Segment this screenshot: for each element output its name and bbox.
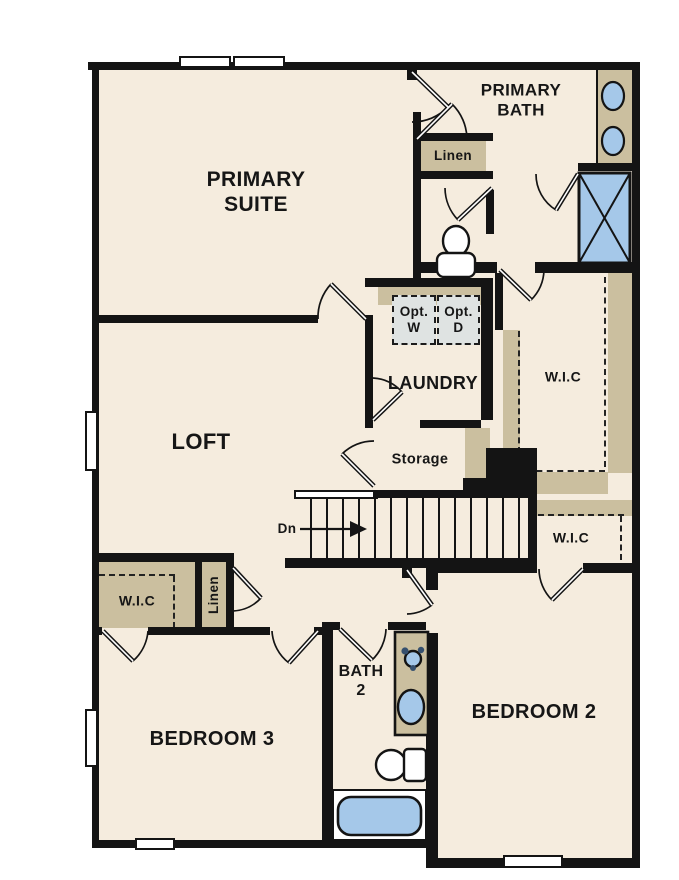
label-stairs-dn: Dn bbox=[278, 521, 297, 537]
wall-bedroom3-east bbox=[322, 630, 333, 842]
wall-wic-west bbox=[495, 273, 503, 330]
window-top-1 bbox=[179, 56, 231, 68]
room-label-primary-bath: PRIMARY BATH bbox=[481, 81, 562, 122]
wall-exterior-top bbox=[88, 62, 640, 70]
wall-linen-left-b bbox=[226, 558, 234, 628]
room-label-loft: LOFT bbox=[171, 429, 230, 455]
wall-block-b bbox=[486, 448, 537, 497]
wall-exterior-right bbox=[632, 70, 640, 868]
washer-label: Opt. W bbox=[400, 304, 429, 336]
wall-vanity-south bbox=[578, 163, 632, 171]
wall-bath-south-a bbox=[421, 262, 497, 273]
room-label-laundry: LAUNDRY bbox=[388, 373, 478, 395]
floor-plan: Opt. W Opt. D bbox=[0, 0, 679, 880]
wall-laundry-north bbox=[365, 278, 493, 287]
stair-railing bbox=[294, 490, 378, 499]
shelf-line bbox=[99, 574, 175, 576]
label-linen-left: Linen bbox=[206, 576, 222, 614]
wall-bedroom2-north-a bbox=[438, 563, 537, 573]
room-label-primary-suite: PRIMARY SUITE bbox=[207, 167, 306, 217]
wall-linen-north bbox=[413, 133, 493, 141]
wall-loft-north bbox=[99, 315, 318, 323]
dryer-box: Opt. D bbox=[437, 295, 480, 345]
room-label-bedroom3: BEDROOM 3 bbox=[150, 727, 275, 751]
wall-linen-south bbox=[413, 171, 493, 179]
wall-bath2-north-a bbox=[322, 622, 340, 630]
wall-bedroom3-north bbox=[148, 627, 270, 635]
wall-linen-left-a bbox=[195, 558, 202, 628]
shelf-line bbox=[518, 331, 520, 453]
room-label-wic-right: W.I.C bbox=[545, 369, 581, 386]
staircase bbox=[296, 497, 528, 558]
wall-laundry-east bbox=[481, 287, 493, 420]
wall-bedroom2-north-b bbox=[583, 563, 632, 573]
wall-toilet-nook bbox=[486, 190, 494, 234]
wall-laundry-south bbox=[420, 420, 481, 428]
wic-right-shelf-east bbox=[608, 273, 632, 473]
wall-hinge-stub bbox=[407, 70, 417, 80]
room-label-bath2: BATH 2 bbox=[339, 662, 384, 700]
wall-hinge-stub bbox=[402, 568, 412, 578]
shelf-line bbox=[604, 277, 606, 467]
wall-bedroom2-west-b bbox=[426, 633, 438, 842]
label-linen-top: Linen bbox=[434, 148, 472, 164]
wall-exterior-step bbox=[426, 840, 438, 866]
wall-wic-left-north bbox=[92, 553, 234, 562]
wall-bedroom3-north-stub bbox=[92, 627, 102, 635]
washer-box: Opt. W bbox=[392, 295, 436, 345]
window-bedroom3-bottom bbox=[135, 838, 175, 850]
shelf-line bbox=[620, 516, 622, 560]
room-label-bedroom2: BEDROOM 2 bbox=[472, 700, 597, 724]
room-label-storage: Storage bbox=[392, 451, 449, 468]
window-bedroom2-bottom bbox=[503, 855, 563, 868]
window-top-2 bbox=[233, 56, 285, 68]
window-loft-left bbox=[85, 411, 98, 471]
dryer-label: Opt. D bbox=[444, 304, 473, 336]
window-bedroom3-left bbox=[85, 709, 98, 767]
wall-laundry-west bbox=[365, 315, 373, 428]
wall-bedroom3-north-stub bbox=[314, 627, 322, 635]
room-label-wic-left: W.I.C bbox=[119, 593, 155, 610]
wall-bedroom2-west-a bbox=[426, 563, 438, 590]
wall-bath-south-b bbox=[535, 262, 632, 273]
shelf-line bbox=[173, 576, 175, 628]
room-label-wic-small: W.I.C bbox=[553, 530, 589, 547]
primary-bath-vanity bbox=[596, 70, 634, 163]
wall-bath2-north-b bbox=[388, 622, 426, 630]
